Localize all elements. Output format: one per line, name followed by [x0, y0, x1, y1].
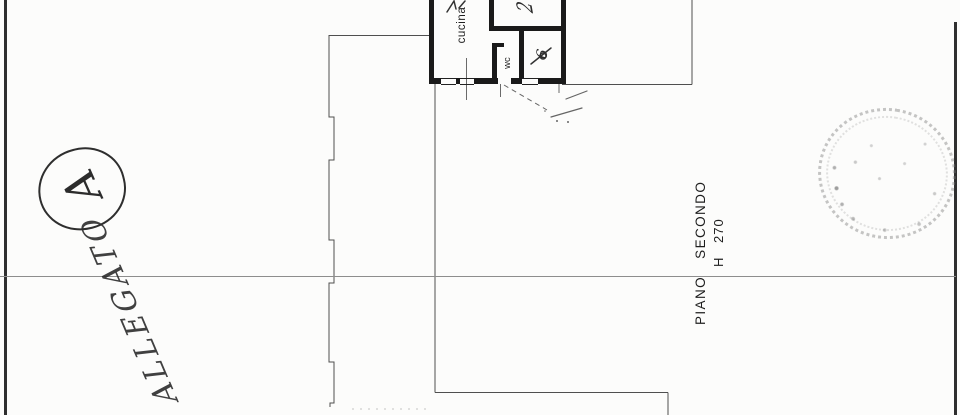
wc-label: wc [501, 50, 513, 76]
wall-upper-room-bottom [489, 26, 566, 31]
window-kitchen-left [441, 78, 456, 85]
wall-outer-right [561, 0, 566, 84]
wall-wc-top-stub [492, 43, 504, 47]
floor-caption: PIANO SECONDO H 270 [693, 155, 729, 325]
wall-bottom-corner-left [429, 78, 441, 84]
annotation-dots [544, 110, 569, 123]
handwritten-room-mark-6: 6 [531, 43, 552, 66]
floor-caption-title: PIANO SECONDO [693, 155, 708, 325]
wall-bottom-pier [511, 78, 522, 84]
wall-wc-left [492, 43, 497, 78]
wall-wc-right [519, 31, 524, 78]
circled-letter: A [56, 163, 109, 210]
floor-caption-height: H 270 [711, 155, 726, 267]
kitchen-label: cucina [455, 0, 469, 55]
scanned-floor-plan-page: cucina wc PIANO SECONDO H 270 ALLEGATO A… [0, 0, 960, 415]
wall-bottom-mid [474, 78, 498, 84]
wall-outer-left [429, 0, 434, 84]
window-side-room [522, 78, 538, 85]
window-kitchen-right [460, 78, 474, 85]
stepped-left-outline [329, 35, 334, 407]
dashed-leader-line [504, 85, 547, 110]
annotation-arrow-strokes [551, 91, 587, 117]
